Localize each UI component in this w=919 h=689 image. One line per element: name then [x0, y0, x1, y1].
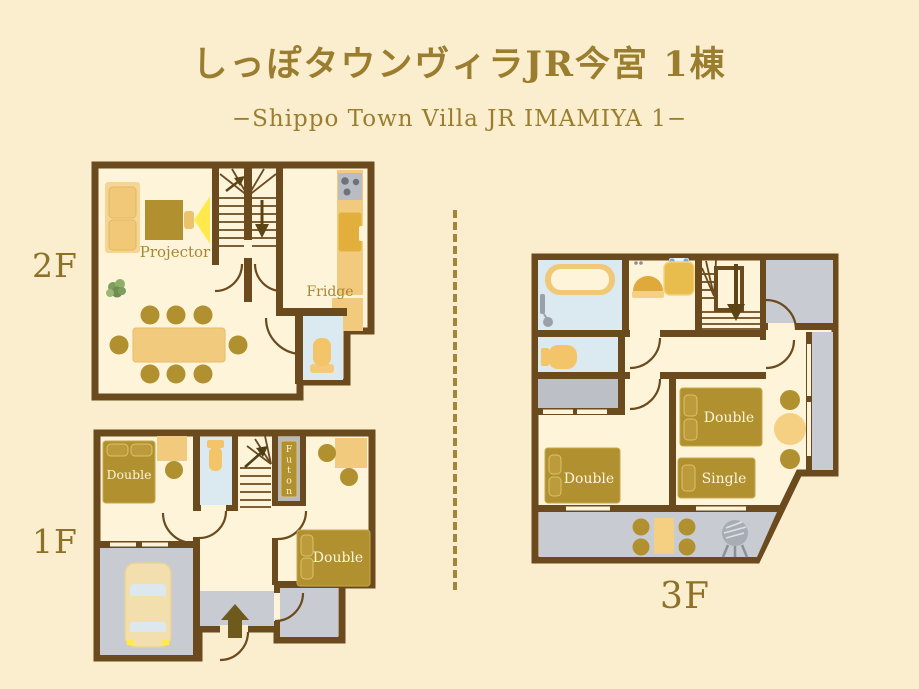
bed-single-3f: Single	[678, 458, 755, 498]
projector-screen-icon	[145, 200, 183, 240]
pillow-icon	[682, 465, 695, 491]
desk-icon	[157, 436, 187, 461]
pillow-icon	[301, 535, 313, 556]
table-icon	[335, 438, 367, 468]
fridge-icon	[338, 212, 365, 252]
pillow-icon	[107, 444, 128, 456]
pillow-icon	[684, 419, 697, 440]
closet-floor	[538, 379, 618, 408]
floor-plan-page: しっぽタウンヴィラJR今宮 1棟 −Shippo Town Villa JR I…	[0, 0, 919, 689]
bed-double-1f-left: Double	[103, 441, 155, 503]
toilet-icon-2f	[310, 338, 334, 373]
label-bed-single: Single	[702, 471, 747, 487]
bed-double-1f-right: Double	[297, 530, 370, 586]
label-bed-double: Double	[313, 550, 363, 566]
table-icon	[654, 518, 674, 554]
projector-icon	[184, 211, 194, 229]
round-table-icon	[774, 413, 806, 445]
pillow-icon	[549, 455, 561, 474]
chair-icon	[165, 461, 183, 479]
floor-plan-2f: Projector Fridge	[95, 165, 371, 397]
bbq-grill-icon	[722, 520, 748, 557]
sofa-icon	[105, 182, 140, 253]
bed-double-3f-left: Double	[545, 448, 620, 503]
bathtub-icon	[545, 264, 615, 295]
car-icon	[125, 563, 171, 647]
floor-plan-3f: Double Double Single	[532, 254, 838, 560]
bed-double-3f-right: Double	[680, 388, 762, 446]
label-bed-double: Double	[107, 467, 152, 482]
label-projector: Projector	[140, 243, 211, 261]
chair-icon	[318, 444, 336, 462]
dining-table-icon	[133, 328, 225, 362]
window-slit	[110, 543, 136, 547]
floor-plans-canvas: Projector Fridge	[0, 0, 919, 689]
label-bed-double: Double	[704, 410, 754, 426]
pillow-icon	[549, 477, 561, 496]
balcony-top-floor	[766, 260, 833, 323]
label-bed-double: Double	[564, 471, 614, 487]
stove-icon	[338, 173, 362, 200]
futon-closet: Futon	[278, 437, 300, 501]
washing-machine-icon	[664, 258, 694, 295]
floor-plan-1f: Futon Double	[97, 433, 372, 660]
chair-icon	[780, 449, 800, 469]
porch-floor	[280, 588, 338, 637]
chair-icon	[780, 390, 800, 410]
pillow-icon	[131, 444, 152, 456]
chair-icon	[340, 468, 358, 486]
pillow-icon	[684, 395, 697, 416]
window-slit	[142, 543, 168, 547]
label-fridge: Fridge	[306, 284, 353, 300]
pillow-icon	[301, 558, 313, 579]
toilet-icon-1f	[207, 440, 224, 471]
toilet-icon-3f	[541, 345, 577, 369]
balcony-side-floor	[812, 332, 833, 470]
